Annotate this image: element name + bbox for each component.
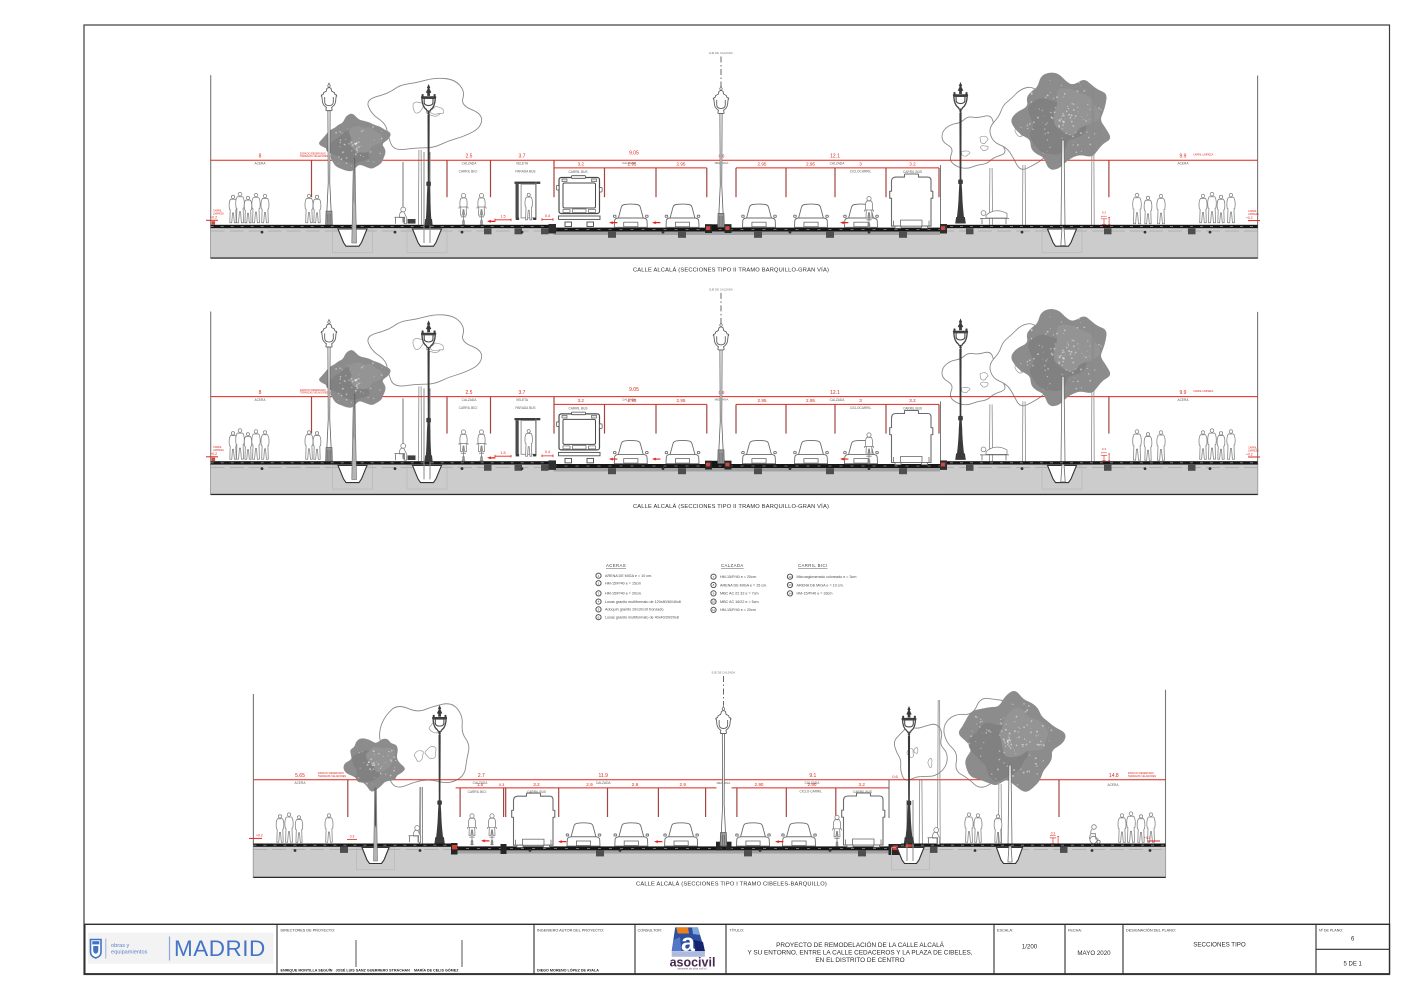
svg-text:9.9: 9.9 [1180, 390, 1187, 396]
svg-text:DIRECTORES DE PROYECTO:: DIRECTORES DE PROYECTO: [281, 928, 336, 932]
svg-text:ACERA: ACERA [1178, 162, 1190, 166]
svg-text:CARRIL BUS: CARRIL BUS [568, 407, 587, 411]
svg-text:MADRID: MADRID [174, 936, 266, 961]
svg-text:Nº DE PLANO:: Nº DE PLANO: [1319, 928, 1343, 932]
svg-text:3.2: 3.2 [909, 398, 916, 403]
svg-text:5.65: 5.65 [295, 773, 305, 779]
svg-text:CALLE ALCALÁ (SECCIONES TIPO I: CALLE ALCALÁ (SECCIONES TIPO II TRAMO BA… [633, 267, 829, 274]
svg-text:9.9: 9.9 [1180, 153, 1187, 159]
svg-text:0.4: 0.4 [545, 450, 550, 454]
svg-text:obras y: obras y [111, 943, 130, 949]
svg-text:HM-15/P/40 e = 20cm: HM-15/P/40 e = 20cm [720, 608, 756, 612]
svg-text:ACERA: ACERA [255, 398, 267, 402]
svg-text:CALLE ALCALÁ (SECCIONES TIPO I: CALLE ALCALÁ (SECCIONES TIPO I TRAMO CIB… [636, 881, 827, 888]
svg-text:2.7: 2.7 [478, 773, 485, 779]
svg-text:2.9: 2.9 [680, 782, 687, 787]
svg-text:9.1: 9.1 [809, 773, 816, 779]
svg-text:CALZADA: CALZADA [462, 398, 478, 402]
svg-text:5 DE 1: 5 DE 1 [1344, 962, 1363, 968]
svg-text:CARRIL BICI: CARRIL BICI [468, 790, 487, 794]
svg-text:2.95: 2.95 [806, 162, 815, 167]
svg-text:+0.2: +0.2 [1246, 453, 1253, 457]
svg-text:0.3: 0.3 [499, 782, 505, 787]
svg-text:TERRAZAS VELADORES: TERRAZAS VELADORES [300, 392, 328, 395]
svg-text:Adoquín granito 10x10x10 tronz: Adoquín granito 10x10x10 tronzado. [605, 608, 664, 612]
svg-text:1.5: 1.5 [500, 451, 505, 455]
svg-text:HM-15/P/40 e = 20cm.: HM-15/P/40 e = 20cm. [720, 575, 757, 579]
svg-text:CARRIL BICI: CARRIL BICI [459, 406, 478, 410]
svg-text:CICLO-CARRIL: CICLO-CARRIL [799, 789, 822, 793]
svg-text:3.7: 3.7 [519, 390, 526, 396]
svg-text:CALZADA: CALZADA [830, 398, 846, 402]
svg-text:HM-15/P/40 e = 33cm: HM-15/P/40 e = 33cm [797, 592, 833, 596]
svg-text:TERRAZAS VELADORES: TERRAZAS VELADORES [1128, 775, 1156, 778]
svg-text:11.9: 11.9 [599, 773, 609, 779]
svg-text:CALZADA: CALZADA [805, 781, 821, 785]
svg-text:3.2: 3.2 [578, 398, 585, 403]
svg-text:EN EL DISTRITO DE CENTRO: EN EL DISTRITO DE CENTRO [815, 957, 904, 964]
svg-text:TÍTULO:: TÍTULO: [730, 928, 745, 932]
svg-text:CARRIL BUS: CARRIL BUS [568, 170, 587, 174]
svg-text:CALLE ALCALÁ (SECCIONES TIPO I: CALLE ALCALÁ (SECCIONES TIPO II TRAMO BA… [633, 503, 829, 510]
svg-text:EJE DE CALZADA: EJE DE CALZADA [712, 671, 736, 675]
svg-text:3.7: 3.7 [519, 153, 526, 159]
svg-text:11: 11 [712, 608, 715, 612]
svg-text:2.90: 2.90 [755, 782, 764, 787]
svg-text:VELETA: VELETA [516, 162, 529, 166]
svg-text:ENRIQUE MONTILLA SEGUÍN JOSÉ: ENRIQUE MONTILLA SEGUÍN JOSÉ LUIS SANZ G… [281, 968, 460, 973]
svg-text:3.2: 3.2 [859, 782, 866, 787]
svg-text:CALZADA: CALZADA [473, 781, 489, 785]
svg-text:14: 14 [788, 592, 792, 596]
svg-text:9.05: 9.05 [629, 387, 639, 393]
svg-text:+0.2: +0.2 [210, 452, 217, 456]
svg-text:PROYECTO DE REMODELACIÓN DE LA: PROYECTO DE REMODELACIÓN DE LA CALLE ALC… [776, 940, 945, 949]
svg-text:ESCALA:: ESCALA: [997, 928, 1013, 932]
svg-text:ACERA: ACERA [295, 781, 307, 785]
svg-text:0.3: 0.3 [1051, 832, 1056, 836]
svg-text:CARRIL LIMPIEZA: CARRIL LIMPIEZA [1193, 154, 1214, 157]
svg-text:3: 3 [859, 398, 862, 403]
svg-text:CARRIL BICI: CARRIL BICI [459, 170, 478, 174]
svg-text:CALZADA: CALZADA [721, 563, 744, 568]
svg-text:0.4: 0.4 [545, 214, 550, 218]
svg-text:asesores de obra civil s.l.: asesores de obra civil s.l. [677, 967, 707, 971]
svg-text:8: 8 [259, 153, 262, 159]
svg-text:ACERAS: ACERAS [606, 563, 626, 568]
svg-text:DESIGNACIÓN DEL PLANO:: DESIGNACIÓN DEL PLANO: [1126, 927, 1176, 932]
svg-text:12.1: 12.1 [830, 153, 840, 159]
svg-text:CALZADA: CALZADA [830, 162, 846, 166]
svg-text:2.95: 2.95 [677, 162, 686, 167]
svg-text:SECCIONES TIPO: SECCIONES TIPO [1193, 942, 1246, 949]
svg-text:2.95: 2.95 [758, 162, 767, 167]
svg-text:CICLOCARRIL: CICLOCARRIL [850, 406, 872, 410]
svg-text:CARRIL BICI: CARRIL BICI [798, 563, 828, 568]
svg-text:HM-15/P/40 e = 20cm.: HM-15/P/40 e = 20cm. [605, 592, 642, 596]
svg-text:3.2: 3.2 [533, 782, 540, 787]
svg-text:CICLOCARRIL: CICLOCARRIL [850, 170, 872, 174]
svg-text:3.2: 3.2 [578, 162, 585, 167]
svg-text:2.95: 2.95 [806, 398, 815, 403]
svg-text:2.9: 2.9 [632, 782, 639, 787]
svg-text:DIEGO MORENO LÓPEZ DE AYALA: DIEGO MORENO LÓPEZ DE AYALA [537, 968, 599, 973]
svg-text:12.1: 12.1 [830, 390, 840, 396]
svg-text:VELETA: VELETA [516, 398, 529, 402]
svg-text:2.95: 2.95 [758, 398, 767, 403]
svg-text:3.2: 3.2 [909, 162, 916, 167]
svg-text:1/200: 1/200 [1022, 944, 1038, 951]
svg-text:TERRAZAS VELADORES: TERRAZAS VELADORES [318, 775, 346, 778]
svg-text:MAYO 2020: MAYO 2020 [1077, 950, 1111, 957]
svg-text:MBC AC 16/22 e = 5cm: MBC AC 16/22 e = 5cm [720, 600, 759, 604]
svg-text:+0.2: +0.2 [256, 834, 263, 838]
svg-text:CONSULTOR:: CONSULTOR: [638, 928, 663, 932]
svg-text:2.5: 2.5 [466, 153, 473, 159]
svg-text:Losas granito multiformato de: Losas granito multiformato de 40x40/30/2… [605, 616, 679, 620]
svg-text:ACERA: ACERA [255, 162, 267, 166]
svg-text:HM-15/P/40 e = 15cm: HM-15/P/40 e = 15cm [605, 582, 641, 586]
svg-text:EJE DE CALZADA: EJE DE CALZADA [709, 51, 733, 55]
svg-text:ARENA DE MIGA e = 10 cm.: ARENA DE MIGA e = 10 cm. [605, 574, 652, 578]
svg-text:10: 10 [712, 600, 716, 604]
svg-text:Losas granito multiformato de: Losas granito multiformato de 120x80/60/… [605, 600, 681, 604]
svg-text:13: 13 [788, 583, 792, 587]
svg-text:EJE DE CALZADA: EJE DE CALZADA [709, 287, 733, 291]
svg-text:ACERA: ACERA [1178, 398, 1190, 402]
svg-text:PARADA BUS: PARADA BUS [515, 406, 535, 410]
svg-text:TERRAZAS VELADORES: TERRAZAS VELADORES [300, 155, 328, 158]
svg-text:0.6: 0.6 [892, 774, 898, 779]
svg-text:+0.2: +0.2 [1246, 216, 1253, 220]
svg-text:+0.2: +0.2 [210, 216, 217, 220]
svg-text:ACERA: ACERA [1108, 783, 1120, 787]
svg-text:CALZADA: CALZADA [596, 781, 612, 785]
svg-text:CALZADA: CALZADA [622, 161, 636, 165]
svg-text:0.3: 0.3 [1102, 211, 1107, 215]
svg-text:CALZADA: CALZADA [462, 162, 478, 166]
svg-text:1.5: 1.5 [500, 214, 505, 218]
svg-text:Y SU ENTORNO, ENTRE LA CALLE C: Y SU ENTORNO, ENTRE LA CALLE CEDACEROS Y… [747, 950, 972, 957]
svg-text:ARENA DE MIGA e = 10 cm.: ARENA DE MIGA e = 10 cm. [797, 583, 844, 587]
svg-text:2.95: 2.95 [677, 398, 686, 403]
svg-text:0.3: 0.3 [350, 834, 355, 838]
svg-text:9.05: 9.05 [629, 151, 639, 157]
svg-text:INGENIERO AUTOR DEL PROYECTO:: INGENIERO AUTOR DEL PROYECTO: [537, 928, 604, 932]
svg-text:ARENA DE MIGA e = 15 cm.: ARENA DE MIGA e = 15 cm. [720, 583, 767, 587]
svg-text:PARADA BUS: PARADA BUS [515, 170, 535, 174]
svg-text:equipamientos: equipamientos [111, 950, 148, 956]
svg-text:+0.2: +0.2 [1144, 836, 1151, 840]
svg-text:8: 8 [259, 390, 262, 396]
svg-text:2.9: 2.9 [586, 782, 593, 787]
svg-text:12: 12 [788, 575, 792, 579]
svg-text:CARRIL LIMPIEZA: CARRIL LIMPIEZA [1193, 390, 1214, 393]
svg-text:3: 3 [859, 162, 862, 167]
svg-text:MBC AC 22 32 e = 7cm: MBC AC 22 32 e = 7cm [720, 592, 759, 596]
svg-text:CALZADA: CALZADA [622, 397, 636, 401]
svg-text:2.5: 2.5 [466, 390, 473, 396]
svg-text:Microaglomerado coloreado e =: Microaglomerado coloreado e = 3cm [797, 575, 857, 579]
svg-text:14.8: 14.8 [1109, 773, 1119, 779]
svg-text:0.3: 0.3 [1102, 447, 1107, 451]
svg-text:FECHA:: FECHA: [1068, 928, 1082, 932]
